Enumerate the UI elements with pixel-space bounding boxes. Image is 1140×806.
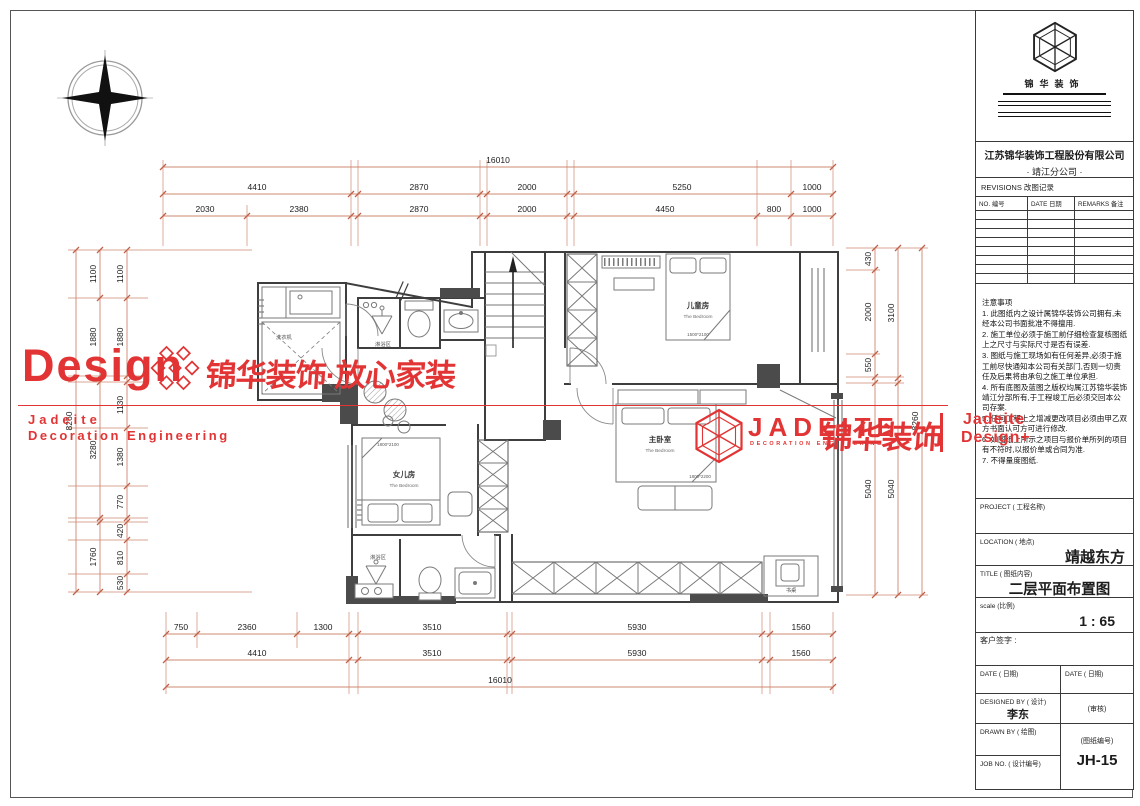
dim-label: 1880: [88, 327, 98, 346]
notes-title: 注意事项: [982, 298, 1128, 308]
revisions-rows: [976, 211, 1133, 284]
bathroom-bottom-fixtures: [355, 560, 495, 600]
dim-label: 4410: [248, 182, 267, 192]
project-section: PROJECT ( 工程名称): [976, 499, 1133, 534]
bed: [362, 438, 440, 525]
dim-label: 8260: [910, 411, 920, 430]
wardrobe-icon: [512, 562, 762, 594]
dim-label: 420: [115, 524, 125, 538]
location-value: 靖越东方: [976, 546, 1133, 567]
drawing-title-value: 二层平面布置图: [976, 578, 1133, 599]
dim-label: 2000: [518, 182, 537, 192]
dim-label: 1380: [115, 447, 125, 466]
revision-row: [976, 211, 1133, 220]
drawing-title-label: TITLE ( 图纸内容): [976, 566, 1133, 578]
note-item: 1. 此图纸内之设计属锦华装饰公司拥有,未经本公司书面批准不得擅用.: [982, 309, 1128, 329]
dim-label: 550: [863, 358, 873, 372]
date-row: DATE ( 日期) DATE ( 日期): [976, 666, 1133, 694]
bed: [666, 254, 730, 340]
bed-size-label: 1800*2200: [689, 474, 711, 479]
dim-label: 2000: [863, 302, 873, 321]
dim-label: 1000: [803, 182, 822, 192]
dim-label: 3510: [423, 648, 442, 658]
dim-label: 1100: [88, 265, 98, 284]
title-block-logo-section: 锦华装饰: [976, 11, 1133, 142]
watermark-red-line: [18, 405, 948, 406]
toilet-icon: [419, 567, 441, 593]
revision-row: [976, 247, 1133, 256]
company-logo-text: 锦华装饰: [1003, 77, 1107, 95]
dim-label: 1560: [792, 648, 811, 658]
floor-plan-drawing: 16010 4410 2870 2000 5250 1000 2030 2380…: [0, 0, 1140, 806]
dim-label: 16010: [488, 675, 512, 685]
client-sign-section: 客户签字 :: [976, 633, 1133, 666]
dim-label: 4450: [656, 204, 675, 214]
designed-row: DESIGNED BY ( 设计) 李东 (审核): [976, 694, 1133, 724]
revision-row: [976, 238, 1133, 247]
drawing-no-value: JH-15: [1061, 746, 1133, 769]
dim-label: 2870: [410, 204, 429, 214]
decorative-lines: [998, 101, 1111, 106]
dim-label: 2360: [238, 622, 257, 632]
dim-label: 770: [115, 495, 125, 509]
room-label-kids: 儿童房: [686, 300, 710, 310]
scale-label: scale (比例): [976, 598, 1133, 610]
dim-label: 3510: [423, 622, 442, 632]
dim-label: 4410: [248, 648, 267, 658]
dim-label: 5040: [886, 479, 896, 498]
title-block: 锦华装饰 江苏锦华装饰工程股份有限公司 · 靖江分公司 · REVISIONS …: [975, 10, 1134, 790]
drawn-job-rows: DRAWN BY ( 绘图) JOB NO. ( 设计编号) (图纸编号) JH…: [976, 724, 1133, 789]
job-no-label: JOB NO. ( 设计编号): [976, 756, 1060, 768]
note-item: 3. 图纸与施工现场如有任何差异,必须于施工前尽快通知本公司有关部门,否则一切责…: [982, 351, 1128, 381]
note-item: 5. 任何工程上之增减更改项目必须由甲乙双方书面认可方可进行修改.: [982, 414, 1128, 434]
shower-area-label: 淋浴区: [370, 553, 387, 561]
dim-label: 3100: [886, 303, 896, 322]
dim-label: 2870: [410, 182, 429, 192]
company-section: 江苏锦华装饰工程股份有限公司 · 靖江分公司 ·: [976, 142, 1133, 178]
decorative-lines: [998, 112, 1111, 117]
revisions-header: REVISIONS 改图记录: [976, 178, 1133, 197]
room-sublabel: The Bedroom: [389, 483, 418, 489]
dim-label: 750: [174, 622, 188, 632]
dim-label: 1560: [792, 622, 811, 632]
bed-size-label: 1800*2100: [377, 442, 399, 447]
dim-label: 810: [115, 551, 125, 565]
shower-icon: [372, 310, 392, 334]
bed-size-label: 1500*2100: [687, 332, 709, 337]
company-name: 江苏锦华装饰工程股份有限公司: [976, 147, 1133, 162]
dim-label: 1880: [115, 327, 125, 346]
revision-row: [976, 274, 1133, 283]
kids-room: [567, 254, 730, 366]
dim-label: 5930: [628, 648, 647, 658]
dim-label: 5250: [673, 182, 692, 192]
bathroom-top-fixtures: [363, 301, 478, 337]
laundry-area: [262, 287, 340, 394]
dim-label: 2380: [290, 204, 309, 214]
rev-col-date: DATE 日期: [1028, 197, 1075, 210]
designer-name: 李东: [976, 706, 1060, 722]
wardrobe-icon: [478, 440, 508, 532]
revision-row: [976, 265, 1133, 274]
drawing-no-label: (图纸编号): [1061, 724, 1133, 746]
note-item: 2. 施工单位必须于施工前仔细检查复核图纸上之尺寸与实际尺寸是否有误差.: [982, 330, 1128, 350]
company-logo-icon: [1028, 19, 1082, 75]
shower-area-label: 淋浴区: [375, 340, 392, 348]
revision-row: [976, 256, 1133, 265]
wardrobe-icon: [567, 254, 597, 366]
room-label-master: 主卧室: [649, 434, 672, 444]
dim-label: 800: [767, 204, 781, 214]
revision-row: [976, 220, 1133, 229]
rev-col-remarks: REMARKS 备注: [1075, 197, 1133, 210]
compass-icon: [57, 50, 153, 146]
dim-label: 8260: [64, 411, 74, 430]
desk-label: 书桌: [786, 586, 797, 594]
washer-label: 洗衣机: [276, 333, 293, 341]
revision-row: [976, 229, 1133, 238]
dim-label: 1000: [803, 204, 822, 214]
designed-by-label: DESIGNED BY ( 设计): [976, 694, 1060, 706]
rev-col-no: NO. 编号: [976, 197, 1028, 210]
dim-label: 530: [115, 576, 125, 590]
dim-label: 16010: [486, 155, 510, 165]
drawing-sheet: 16010 4410 2870 2000 5250 1000 2030 2380…: [0, 0, 1140, 806]
room-label-daughter: 女儿房: [393, 469, 416, 479]
dim-label: 5040: [863, 479, 873, 498]
dim-label: 2030: [196, 204, 215, 214]
dim-label: 1760: [88, 547, 98, 566]
note-item: 6. 如图纸上所示之项目与报价单所列的项目有不符时,以报价单或合同为准.: [982, 435, 1128, 455]
toilet-tank: [405, 301, 433, 310]
date-label-right: DATE ( 日期): [1061, 666, 1133, 693]
revisions-columns: NO. 编号 DATE 日期 REMARKS 备注: [976, 197, 1133, 211]
project-label: PROJECT ( 工程名称): [976, 499, 1133, 511]
dim-label: 430: [863, 252, 873, 266]
revisions-label: REVISIONS 改图记录: [976, 178, 1133, 193]
door-arcs: [322, 304, 613, 567]
client-sign-label: 客户签字 :: [976, 633, 1133, 646]
room-sublabel: The Bedroom: [645, 448, 674, 454]
location-section: LOCATION ( 地点) 靖越东方: [976, 534, 1133, 566]
dim-label: 3280: [88, 440, 98, 459]
corner-desk: [780, 390, 836, 418]
scale-value: 1 : 65: [976, 610, 1133, 629]
location-label: LOCATION ( 地点): [976, 534, 1133, 546]
drawing-title-section: TITLE ( 图纸内容) 二层平面布置图: [976, 566, 1133, 598]
dim-label: 2000: [518, 204, 537, 214]
dim-label: 1100: [115, 265, 125, 284]
checker-label: (审核): [1061, 694, 1133, 723]
notes-section: 注意事项 1. 此图纸内之设计属锦华装饰公司拥有,未经本公司书面批准不得擅用. …: [976, 284, 1133, 499]
company-branch: · 靖江分公司 ·: [976, 165, 1133, 178]
toilet-icon: [408, 311, 430, 337]
date-label-left: DATE ( 日期): [976, 666, 1061, 693]
dim-label: 5930: [628, 622, 647, 632]
dim-label: 1300: [314, 622, 333, 632]
drawn-by-label: DRAWN BY ( 绘图): [976, 724, 1060, 736]
note-item: 4. 所有底图及蓝图之版权均属江苏锦华装饰靖江分部所有,于工程竣工后必须交回本公…: [982, 383, 1128, 413]
scale-section: scale (比例) 1 : 65: [976, 598, 1133, 633]
shower-icon: [366, 566, 386, 584]
note-item: 7. 不得量度图纸.: [982, 456, 1128, 466]
room-sublabel: The Bedroom: [683, 314, 712, 320]
